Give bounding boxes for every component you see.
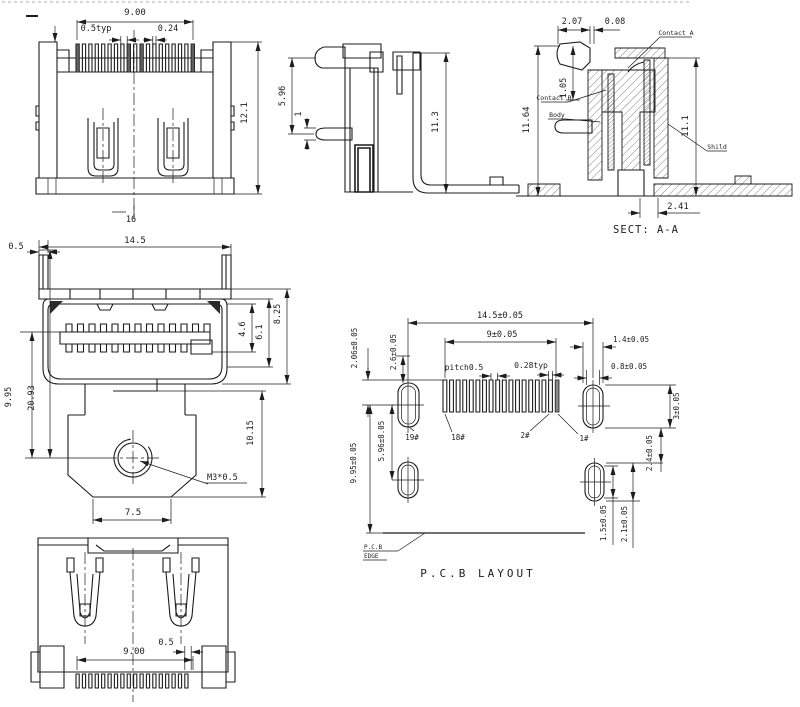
rear-body-outline	[36, 42, 234, 194]
pcb-mount-hole-left	[392, 457, 424, 503]
pcb-dim-hole-slot: 1.5±0.05	[599, 505, 608, 541]
front-neck-boss	[68, 384, 196, 497]
view-bottom: 9.00 0.5	[31, 538, 235, 702]
side-ext-lines	[288, 53, 450, 140]
front-dim-shell-height: 8.25	[273, 304, 283, 324]
pcb-mount-hole-right	[580, 458, 611, 506]
front-dim-inner-height: 6.1	[255, 324, 265, 339]
pcb-dim-pin-span: 9±0.05	[487, 330, 518, 340]
pcb-caption: P.C.B LAYOUT	[420, 567, 535, 580]
side-body-outline	[315, 44, 519, 193]
pcb-dim-pad19-width: 2.6±0.05	[389, 334, 398, 370]
pcb-dim-width: 14.5±0.05	[477, 311, 523, 321]
rear-dim-pin-row: 9.00	[124, 8, 146, 18]
pcb-pin-label-leaders	[408, 414, 578, 434]
view-front-face: 0.5 14.5 4.6 6.1 8.25 10.15 9.95 20.93 7…	[4, 236, 291, 524]
pcb-dim-pad1-width: 1.4±0.05	[613, 335, 649, 344]
pcb-dim-pad19-offset: 2.06±0.05	[350, 328, 359, 369]
front-dim-total-height: 20.93	[27, 385, 37, 411]
pcb-dim-pad-width: 0.28typ	[514, 361, 548, 370]
section-shield-hatched	[528, 48, 792, 196]
front-dim-axis-offset: 9.95	[4, 387, 14, 407]
section-dim-tail: 2.41	[667, 202, 689, 212]
pcb-dim-pad1-height: 3±0.05	[672, 392, 681, 419]
section-dim-gap: 0.08	[605, 17, 625, 27]
pcb-dim-mount-gap: 5.96±0.05	[377, 421, 386, 462]
pcb-label-pin1: 1#	[579, 434, 589, 443]
front-dim-width: 14.5	[124, 236, 146, 246]
section-label-contact-a: Contact A	[658, 29, 693, 37]
bottom-dim-pin-row: 9.00	[123, 647, 145, 657]
front-dim-boss-height: 10.15	[246, 420, 256, 446]
front-corner-keys	[50, 301, 220, 314]
bottom-centerlines	[85, 548, 181, 702]
section-label-body: Body	[549, 111, 565, 119]
pcb-label-edge2: EDGE	[364, 553, 379, 560]
side-dim-flange-to-lead: 5.96	[278, 86, 288, 106]
front-posts-rail	[39, 255, 231, 299]
rear-base-detail	[48, 178, 222, 194]
pcb-dim-pitch: pitch0.5	[445, 363, 484, 372]
pcb-dim-pad1-slot: 0.8±0.05	[611, 362, 647, 371]
pcb-label-edge1: P.C.B	[364, 544, 382, 551]
front-dim-opening: 4.6	[238, 321, 248, 336]
drawing-sheet: 9.00 0.5typ 0.24 12.1 16 5.96 1 11.3 2.0…	[0, 0, 800, 707]
pcb-pad-row	[443, 380, 552, 412]
section-caption: SECT: A-A	[613, 224, 679, 236]
front-hole-crosshair	[105, 430, 161, 487]
view-section-aa: 2.07 0.08 1.05 11.64 11.1 2.41 Contact A…	[516, 17, 792, 236]
pcb-label-pin2: 2#	[520, 431, 530, 440]
side-dim-lead-thickness: 1	[294, 111, 304, 116]
rear-dim-pitch: 0.5typ	[81, 24, 112, 34]
view-rear-elevation: 9.00 0.5typ 0.24 12.1 16	[26, 8, 262, 225]
front-tongue-pins	[60, 324, 212, 354]
rear-dim-height: 12.1	[240, 102, 250, 124]
front-label-thread: M3*0.5	[207, 473, 238, 483]
view-side-elevation: 5.96 1 11.3	[278, 44, 519, 193]
side-solder-tail	[355, 145, 373, 192]
section-dim-height-right: 11.1	[681, 115, 691, 137]
front-ext-lines	[20, 240, 291, 524]
section-label-contact-b: Contact B	[536, 94, 571, 102]
rear-dim-pin-width: 0.24	[158, 24, 178, 34]
section-label-shield: Shild	[707, 143, 727, 151]
thread-callout-arrow	[140, 461, 208, 484]
front-dim-lip: 0.5	[8, 242, 23, 252]
connector-mechanical-drawing: 9.00 0.5typ 0.24 12.1 16 5.96 1 11.3 2.0…	[0, 0, 800, 707]
section-dim-latch-width: 2.07	[562, 17, 582, 27]
pcb-dim-gap-right: 2.4±0.05	[645, 435, 654, 471]
pcb-oval-pad-19	[392, 377, 424, 433]
pcb-dim-hole-height: 2.1±0.05	[620, 506, 629, 542]
section-dim-height-left: 11.64	[522, 106, 532, 133]
view-pcb-layout: 14.5±0.05 9±0.05 pitch0.5 0.28typ 2.06±0…	[349, 311, 681, 580]
bottom-dim-offset: 0.5	[158, 638, 173, 648]
pcb-label-pin18: 18#	[451, 433, 465, 442]
pcb-dim-mount-offset: 9.95±0.05	[349, 443, 358, 484]
pcb-label-pin19: 19#	[405, 433, 419, 442]
bottom-pin-comb	[76, 674, 188, 688]
front-dim-boss-width: 7.5	[125, 508, 141, 518]
rear-dim-width: 16	[126, 215, 136, 225]
pcb-oval-pad-1	[578, 380, 610, 433]
pcb-pad-pin1	[555, 380, 559, 412]
side-dim-height: 11.3	[431, 111, 441, 133]
